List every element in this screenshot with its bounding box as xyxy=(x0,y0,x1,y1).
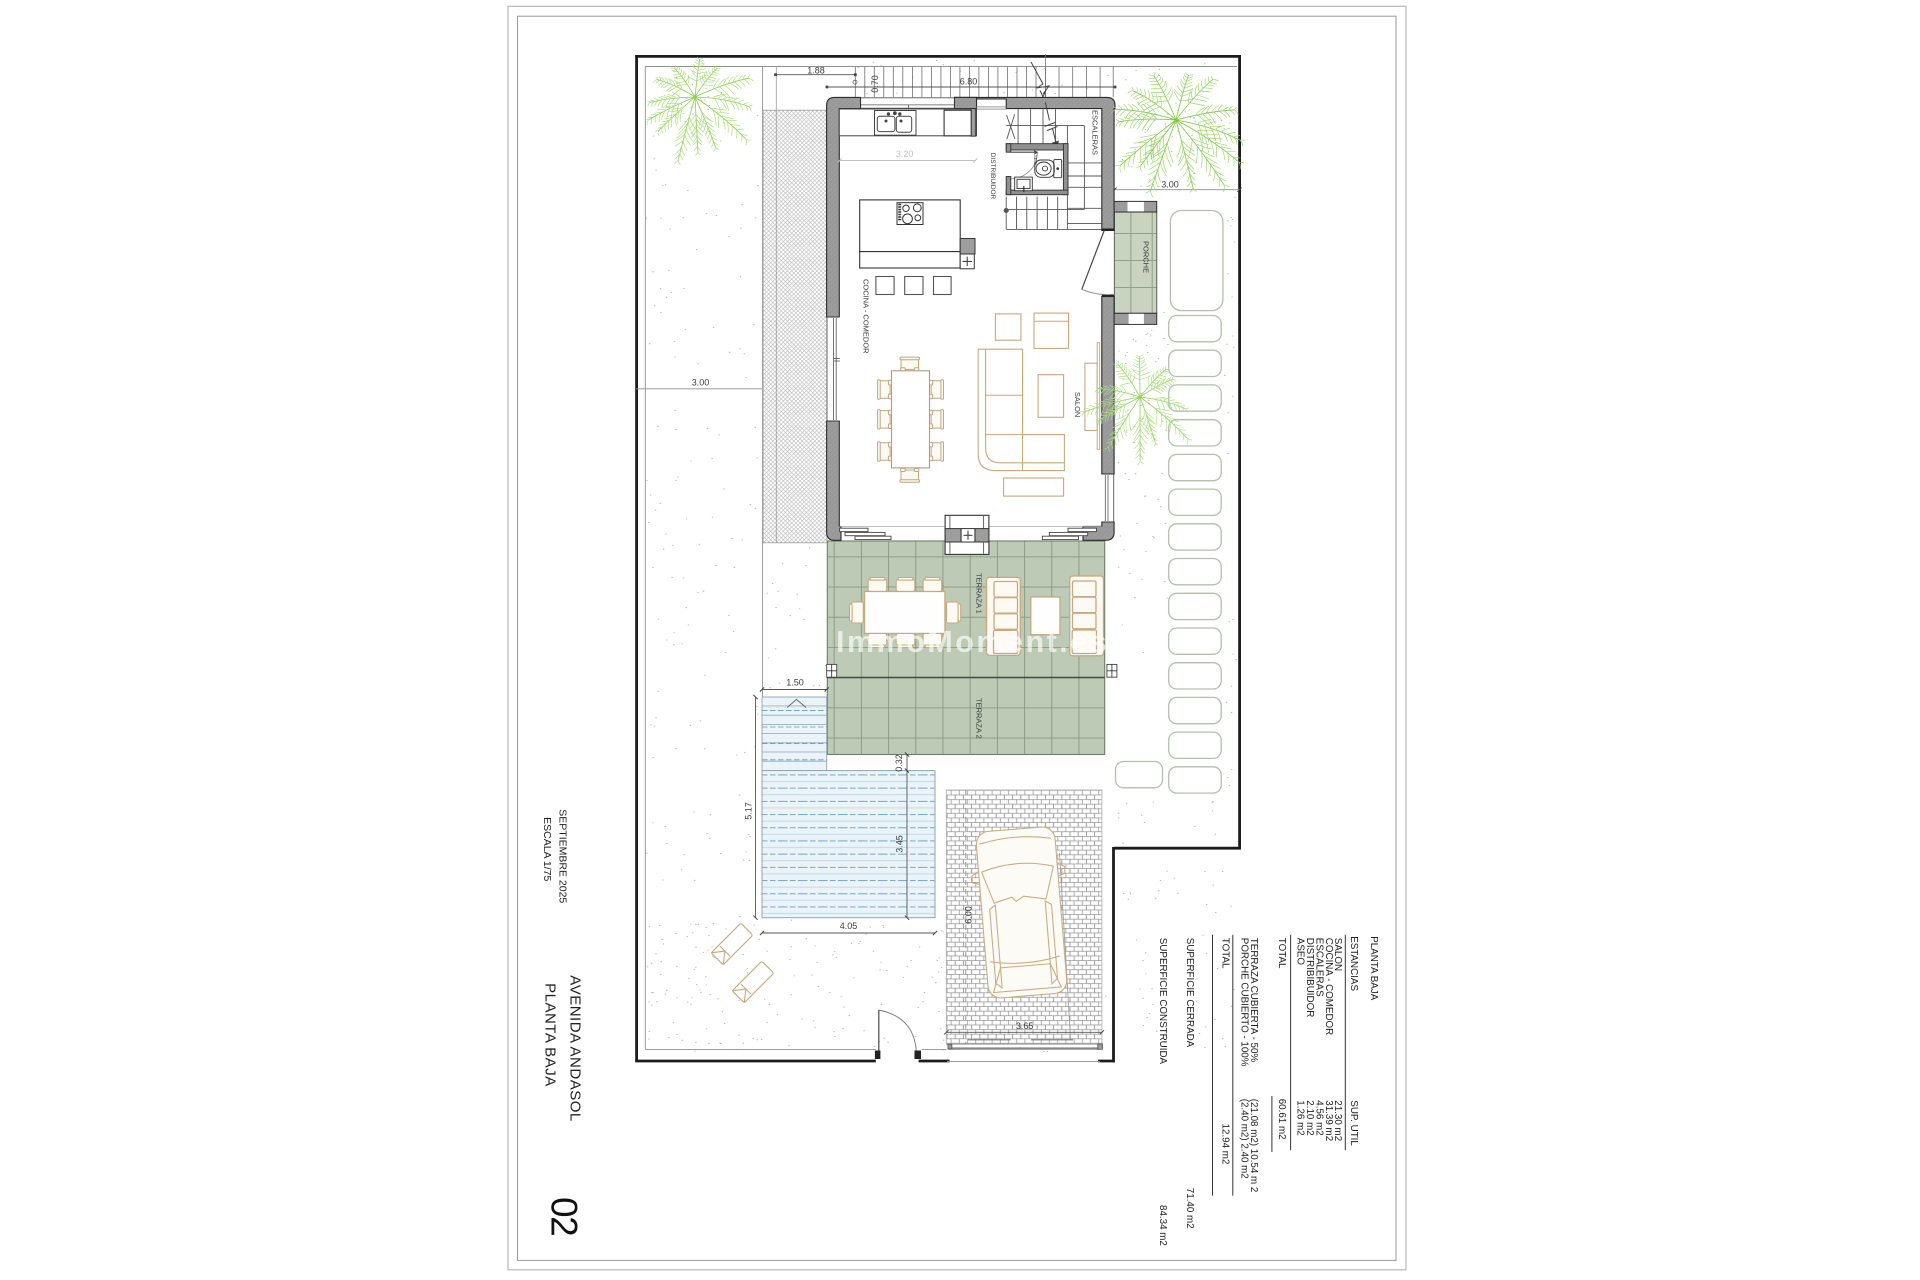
svg-text:5.17: 5.17 xyxy=(744,802,754,820)
svg-text:PORCHE CUBIERTO - 100%: PORCHE CUBIERTO - 100% xyxy=(1239,938,1250,1067)
svg-text:DISTRIBUIDOR: DISTRIBUIDOR xyxy=(989,153,996,200)
svg-text:AVENIDA ANDASOL: AVENIDA ANDASOL xyxy=(567,975,584,1121)
svg-text:ASEO: ASEO xyxy=(1032,152,1038,166)
svg-text:PORCHE: PORCHE xyxy=(1142,241,1151,273)
svg-text:TOTAL: TOTAL xyxy=(1276,938,1287,969)
svg-text:3.00: 3.00 xyxy=(692,378,710,388)
svg-text:PLANTA BAJA: PLANTA BAJA xyxy=(1368,936,1379,1001)
svg-text:SUP. UTIL: SUP. UTIL xyxy=(1348,1100,1359,1146)
svg-text:1.50: 1.50 xyxy=(786,678,804,688)
svg-text:SEPTIEMBRE 2025: SEPTIEMBRE 2025 xyxy=(557,809,569,903)
svg-text:1.88: 1.88 xyxy=(807,66,825,76)
svg-text:SUPERFICIE CERRADA: SUPERFICIE CERRADA xyxy=(1184,938,1195,1048)
svg-text:71.40 m2: 71.40 m2 xyxy=(1184,1188,1195,1229)
svg-text:ESCALA 1/75: ESCALA 1/75 xyxy=(541,817,553,881)
svg-text:SALON: SALON xyxy=(1073,392,1082,417)
svg-text:TERRAZA 2: TERRAZA 2 xyxy=(974,698,983,739)
svg-text:ASEO: ASEO xyxy=(1295,938,1306,966)
svg-text:COCINA - COMEDOR: COCINA - COMEDOR xyxy=(862,279,871,354)
svg-text:3.65: 3.65 xyxy=(1016,1021,1034,1031)
svg-text:6.00: 6.00 xyxy=(964,906,974,924)
svg-text:(2.40 m2) 2.40 m2: (2.40 m2) 2.40 m2 xyxy=(1239,1099,1250,1179)
svg-text:ImmoMoment.es: ImmoMoment.es xyxy=(836,625,1109,659)
svg-text:0.70: 0.70 xyxy=(870,75,880,93)
svg-text:PLANTA BAJA: PLANTA BAJA xyxy=(541,983,558,1087)
svg-text:02: 02 xyxy=(544,1197,585,1235)
svg-text:3.00: 3.00 xyxy=(1161,179,1179,189)
svg-text:TERRAZA 1: TERRAZA 1 xyxy=(974,573,983,614)
svg-text:6.80: 6.80 xyxy=(960,76,978,86)
svg-text:1.26 m2: 1.26 m2 xyxy=(1295,1100,1306,1135)
svg-text:ESTANCIAS: ESTANCIAS xyxy=(1348,936,1359,991)
svg-text:4.05: 4.05 xyxy=(840,921,858,931)
svg-text:ESCALERAS: ESCALERAS xyxy=(1091,110,1100,155)
svg-text:12.94 m2: 12.94 m2 xyxy=(1220,1124,1231,1165)
svg-text:SUPERFICIE CONSTRUIDA: SUPERFICIE CONSTRUIDA xyxy=(1157,938,1168,1065)
svg-text:84.34 m2: 84.34 m2 xyxy=(1157,1205,1168,1246)
svg-text:3.20: 3.20 xyxy=(896,149,914,159)
svg-text:TOTAL: TOTAL xyxy=(1220,938,1231,969)
svg-text:0.32: 0.32 xyxy=(894,754,904,772)
svg-text:60.61 m2: 60.61 m2 xyxy=(1276,1099,1287,1140)
svg-text:3.45: 3.45 xyxy=(895,835,905,853)
